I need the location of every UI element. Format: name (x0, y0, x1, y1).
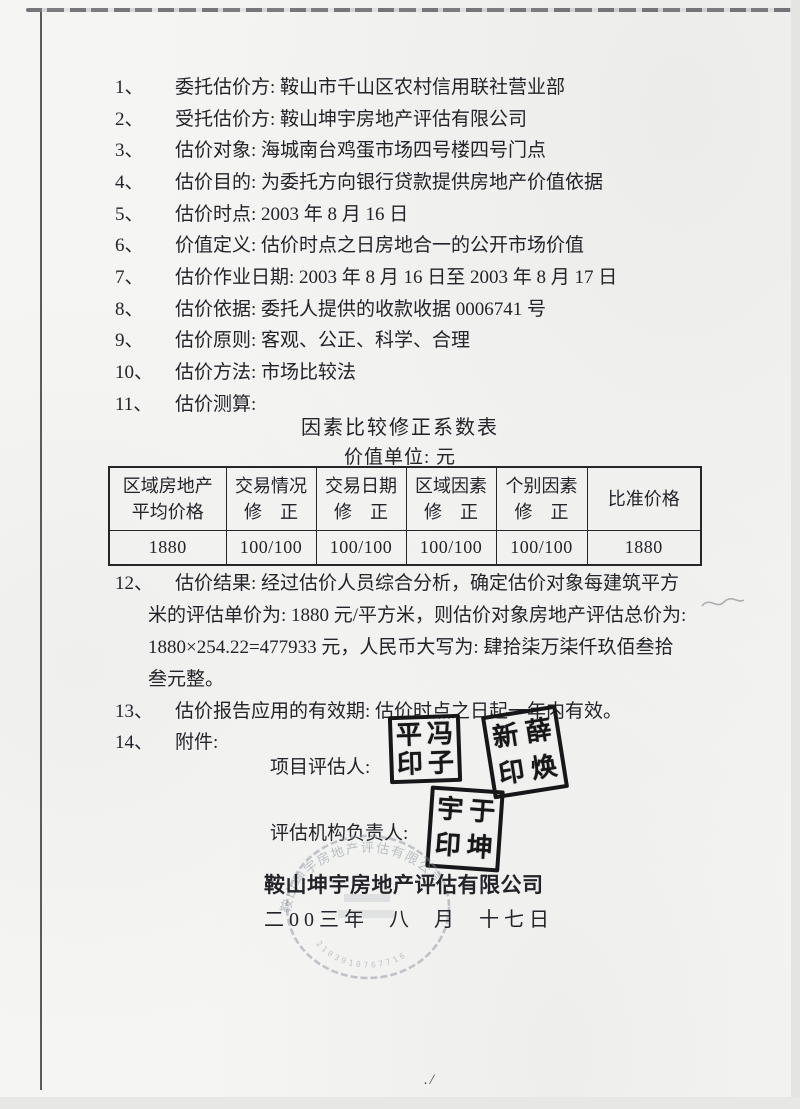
item-text: 委托估价方: 鞍山市千山区农村信用联社营业部 (175, 77, 565, 98)
item-number: 12、 (115, 571, 175, 596)
company-name: 鞍山坤宇房地产评估有限公司 (264, 869, 544, 899)
item-number: 1、 (115, 75, 175, 100)
pen-squiggle-artifact (700, 592, 746, 614)
item-text: 估价方法: 市场比较法 (175, 362, 356, 383)
table-unit-line: 价值单位: 元 (60, 442, 740, 469)
seal-char: 薛 (519, 710, 557, 752)
item-number: 8、 (115, 297, 175, 322)
col-header-regional-factor: 区域因素修 正 (406, 467, 496, 531)
name-seal-xue-huanxin: 新薛印焕 (481, 705, 569, 800)
name-seal-feng-ziping: 平冯印子 (388, 714, 462, 784)
list-item-12: 12、估价结果: 经过估价人员综合分析，确定估价对象每建筑平方 (115, 571, 679, 596)
svg-text:2103910767716: 2103910767716 (314, 939, 409, 970)
item-text: 估价对象: 海城南台鸡蛋市场四号楼四号门点 (175, 140, 546, 161)
table-title: 因素比较修正系数表 (60, 411, 740, 440)
cell-regional-factor: 100/100 (406, 531, 496, 566)
cell-avg-price: 1880 (109, 531, 226, 566)
cell-benchmark-price: 1880 (587, 531, 701, 566)
seal-char: 子 (425, 748, 457, 778)
item-text: 附件: (175, 732, 218, 753)
factor-correction-table: 区域房地产平均价格 交易情况修 正 交易日期修 正 区域因素修 正 个别因素修 … (108, 466, 702, 566)
item-12-line-4: 叁元整。 (148, 667, 224, 692)
table-data-row: 1880 100/100 100/100 100/100 100/100 188… (109, 531, 701, 566)
seal-digits: 2103910767716 (314, 939, 409, 970)
scan-bottom-edge (0, 1097, 800, 1109)
table-header-row: 区域房地产平均价格 交易情况修 正 交易日期修 正 区域因素修 正 个别因素修 … (109, 467, 701, 531)
col-header-regional-avg-price: 区域房地产平均价格 (109, 467, 226, 531)
list-item-6: 6、价值定义: 估价时点之日房地合一的公开市场价值 (115, 233, 584, 258)
date-line: 二00三年 八 月 十七日 (264, 903, 554, 932)
item-number: 4、 (115, 170, 175, 195)
list-item-4: 4、估价目的: 为委托方向银行贷款提供房地产价值依据 (115, 170, 603, 195)
seal-char: 冯 (424, 719, 456, 749)
item-text: 估价目的: 为委托方向银行贷款提供房地产价值依据 (175, 172, 603, 193)
item-number: 5、 (115, 202, 175, 227)
list-item-5: 5、估价时点: 2003 年 8 月 16 日 (115, 202, 408, 227)
seal-char: 平 (393, 720, 425, 750)
project-appraiser-label: 项目评估人: (270, 752, 370, 779)
item-text: 估价结果: 经过估价人员综合分析，确定估价对象每建筑平方 (175, 573, 679, 594)
list-item-7: 7、估价作业日期: 2003 年 8 月 16 日至 2003 年 8 月 17… (115, 265, 617, 290)
list-item-3: 3、估价对象: 海城南台鸡蛋市场四号楼四号门点 (115, 138, 546, 163)
list-item-2: 2、受托估价方: 鞍山坤宇房地产评估有限公司 (115, 107, 527, 132)
item-text: 估价作业日期: 2003 年 8 月 16 日至 2003 年 8 月 17 日 (175, 267, 617, 288)
item-text: 估价依据: 委托人提供的收款收据 0006741 号 (175, 299, 546, 320)
item-number: 9、 (115, 328, 175, 353)
seal-char: 印 (394, 749, 426, 779)
scan-right-edge (791, 0, 800, 1109)
scan-top-edge-artifact (26, 8, 794, 12)
item-12-line-3: 1880×254.22=477933 元，人民币大写为: 肆拾柒万柒仟玖佰叁拾 (148, 635, 673, 660)
item-number: 2、 (115, 107, 175, 132)
list-item-10: 10、估价方法: 市场比较法 (115, 360, 356, 385)
col-header-benchmark-price: 比准价格 (587, 467, 701, 531)
col-header-transaction-date: 交易日期修 正 (316, 467, 406, 531)
item-text: 价值定义: 估价时点之日房地合一的公开市场价值 (175, 235, 584, 256)
item-number: 13、 (115, 699, 175, 724)
seal-char: 焕 (525, 747, 563, 789)
item-text: 估价原则: 客观、公正、科学、合理 (175, 330, 470, 351)
cell-transaction-condition: 100/100 (226, 531, 316, 566)
list-item-1: 1、委托估价方: 鞍山市千山区农村信用联社营业部 (115, 75, 565, 100)
cell-transaction-date: 100/100 (316, 531, 406, 566)
item-number: 7、 (115, 265, 175, 290)
item-text: 受托估价方: 鞍山坤宇房地产评估有限公司 (175, 109, 527, 130)
col-header-transaction-condition: 交易情况修 正 (226, 467, 316, 531)
scan-fold-line-artifact (40, 12, 42, 1090)
cell-individual-factor: 100/100 (496, 531, 587, 566)
footer-page-mark: ./ (424, 1072, 436, 1089)
col-header-individual-factor: 个别因素修 正 (496, 467, 587, 531)
list-item-8: 8、估价依据: 委托人提供的收款收据 0006741 号 (115, 297, 546, 322)
item-number: 3、 (115, 138, 175, 163)
item-12-line-2: 米的评估单价为: 1880 元/平方米，则估价对象房地产评估总价为: (148, 603, 686, 628)
scanned-appraisal-page: 1、委托估价方: 鞍山市千山区农村信用联社营业部 2、受托估价方: 鞍山坤宇房地… (0, 0, 800, 1109)
item-number: 6、 (115, 233, 175, 258)
item-text: 估价时点: 2003 年 8 月 16 日 (175, 204, 408, 225)
item-number: 10、 (115, 360, 175, 385)
list-item-14: 14、附件: (115, 730, 218, 755)
item-number: 14、 (115, 730, 175, 755)
list-item-9: 9、估价原则: 客观、公正、科学、合理 (115, 328, 470, 353)
